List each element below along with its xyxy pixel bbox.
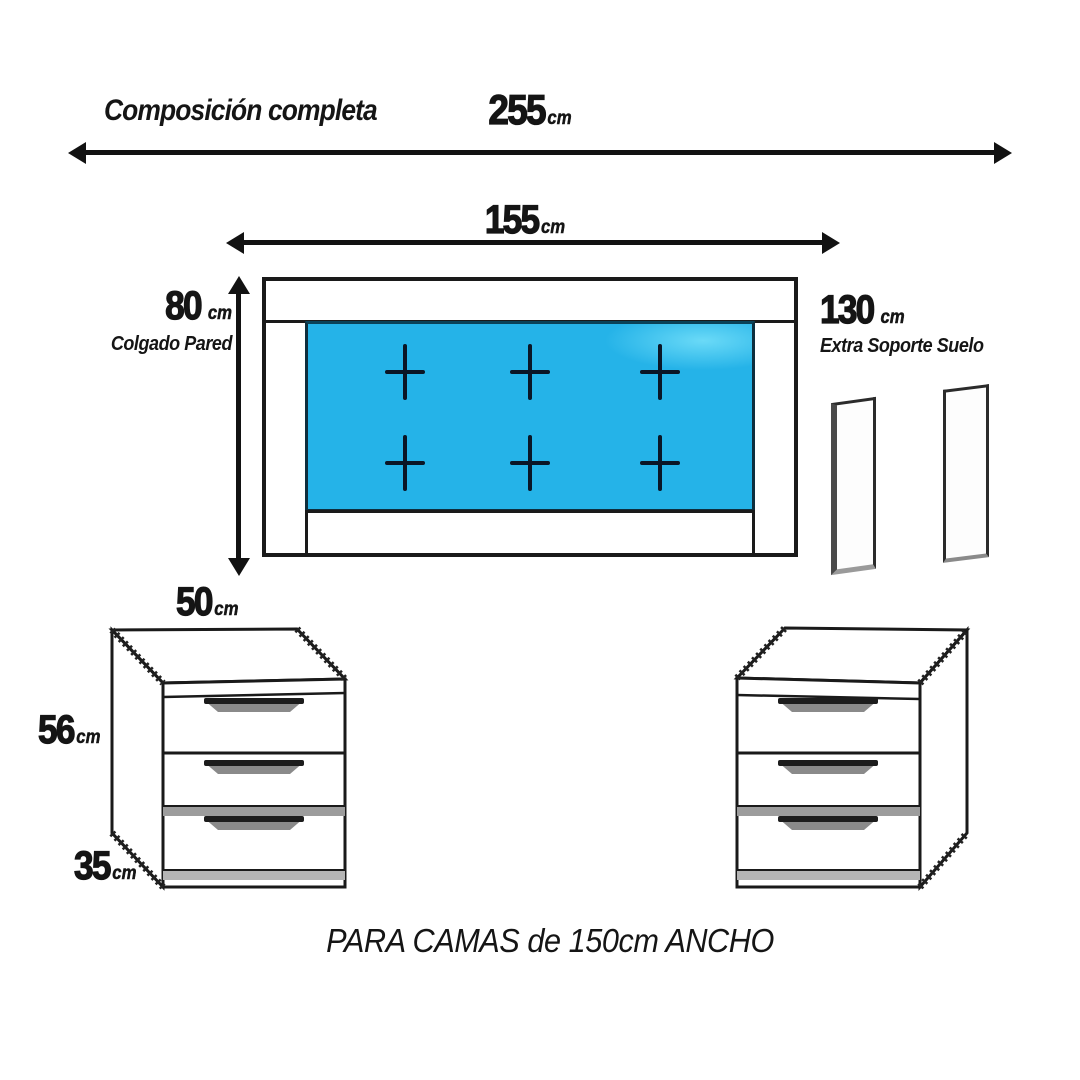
button-cross (510, 344, 550, 400)
button-cross (385, 435, 425, 491)
diagram-title: Composición completa (104, 94, 377, 128)
button-cross (385, 344, 425, 400)
headboard-width-value: 155 (485, 198, 538, 243)
headboard-width-arrow (242, 240, 824, 245)
drawer-handle (778, 760, 878, 766)
headboard-base-strip (305, 510, 755, 553)
nightstand-width-label: 50 cm (176, 580, 238, 625)
nightstand-height-value: 56 (38, 708, 74, 753)
nightstand-height-unit: cm (76, 727, 100, 749)
button-cross (640, 344, 680, 400)
plinth-band (163, 870, 345, 880)
floor-support-caption: Extra Soporte Suelo (820, 335, 983, 358)
nightstand-depth-label: 35 cm (74, 844, 136, 889)
floor-support-unit: cm (881, 307, 905, 329)
headboard-height-label: 80 cm Colgado Pared (58, 284, 232, 356)
drawer-handle (778, 698, 878, 704)
button-cross (510, 435, 550, 491)
floor-support-panel-right (943, 384, 989, 563)
headboard-height-unit: cm (208, 303, 232, 325)
footer-note: PARA CAMAS de 150cm ANCHO (326, 922, 774, 960)
nightstand-depth-value: 35 (74, 844, 110, 889)
nightstand-left-drawing (100, 618, 350, 894)
nightstand-width-value: 50 (176, 580, 212, 625)
drawer-handle (204, 698, 304, 704)
drawer-handle (204, 760, 304, 766)
total-width-label: 255 cm (488, 86, 571, 134)
nightstand-right-drawing (730, 618, 990, 894)
headboard-height-arrow (236, 292, 241, 560)
floor-support-panel-left (831, 397, 876, 575)
drawer-handle (778, 816, 878, 822)
floor-support-value: 130 (820, 288, 873, 333)
drawer-handle (204, 816, 304, 822)
drawer-separator-band (163, 806, 345, 816)
nightstand-height-label: 56 cm (38, 708, 100, 753)
headboard-height-value: 80 (165, 284, 201, 329)
headboard-upholstered-panel (305, 321, 755, 512)
button-cross (640, 435, 680, 491)
total-width-value: 255 (488, 86, 544, 134)
headboard-width-unit: cm (541, 217, 565, 239)
drawer-separator-band (737, 806, 920, 816)
total-width-unit: cm (547, 108, 571, 130)
plinth-band (737, 870, 920, 880)
total-width-arrow (84, 150, 996, 155)
headboard-height-caption: Colgado Pared (75, 333, 232, 356)
furniture-dimensions-diagram: Composición completa 255 cm 155 cm 80 cm… (0, 0, 1080, 1080)
headboard-width-label: 155 cm (485, 198, 565, 243)
nightstand-depth-unit: cm (112, 863, 136, 885)
floor-support-label: 130 cm Extra Soporte Suelo (820, 288, 1002, 358)
nightstand-width-unit: cm (214, 599, 238, 621)
headboard-drawing (262, 277, 798, 557)
